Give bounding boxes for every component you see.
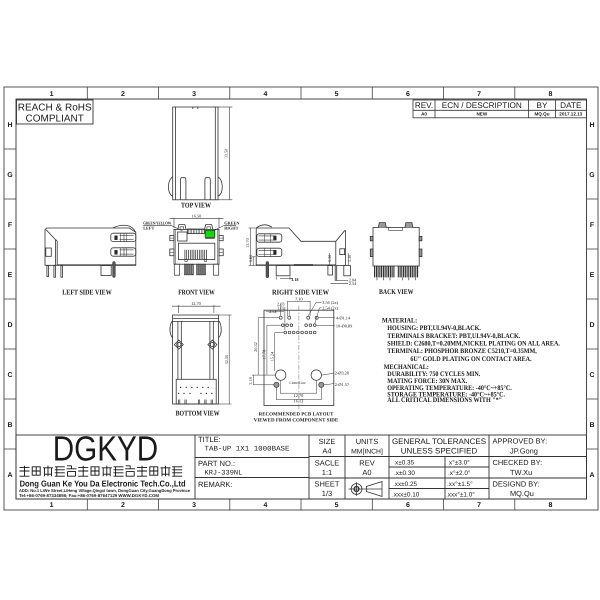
svg-text:2.54 (2x): 2.54 (2x)	[322, 305, 338, 310]
svg-text:1/3: 1/3	[322, 489, 332, 498]
svg-text:.xx°±1.5°: .xx°±1.5°	[447, 481, 473, 488]
svg-text:16.50: 16.50	[192, 214, 202, 219]
svg-text:HOUSING: PBT,UL94V-0,BLACK.: HOUSING: PBT,UL94V-0,BLACK.	[387, 325, 481, 332]
svg-text:LEFT: LEFT	[143, 226, 154, 231]
svg-text:E: E	[8, 272, 13, 279]
svg-text:3.30: 3.30	[347, 255, 352, 263]
svg-text:A: A	[589, 472, 594, 479]
svg-text:RIGHT: RIGHT	[224, 226, 238, 231]
svg-text:F: F	[590, 222, 595, 229]
svg-text:RIGHT SIDE VIEW: RIGHT SIDE VIEW	[272, 288, 330, 296]
svg-text:REMARK:: REMARK:	[198, 480, 233, 489]
svg-text:10-Ø0.89: 10-Ø0.89	[336, 323, 352, 328]
svg-text:DATE: DATE	[560, 101, 582, 110]
svg-text:16.13: 16.13	[294, 399, 304, 404]
svg-text:A: A	[7, 472, 12, 479]
svg-text:SHEET: SHEET	[314, 480, 339, 489]
svg-text:2017.12.13: 2017.12.13	[559, 112, 582, 117]
svg-text:G: G	[7, 172, 13, 179]
svg-text:6: 6	[406, 502, 410, 509]
svg-text:2-Ø3.20: 2-Ø3.20	[335, 371, 349, 376]
svg-text:A0: A0	[362, 468, 371, 477]
svg-text:A0: A0	[421, 112, 427, 117]
svg-text:A4: A4	[322, 447, 331, 456]
svg-text:x°±3.0°: x°±3.0°	[449, 460, 470, 467]
svg-text:BACK VIEW: BACK VIEW	[379, 288, 414, 296]
svg-text:D: D	[7, 322, 12, 329]
svg-text:2-Ø1.57: 2-Ø1.57	[335, 382, 350, 387]
svg-text:3: 3	[192, 502, 196, 509]
svg-text:E: E	[590, 272, 595, 279]
svg-text:.x±0.30: .x±0.30	[394, 470, 415, 477]
svg-text:DURABILITY: 750 CYCLES MIN.: DURABILITY: 750 CYCLES MIN.	[387, 371, 480, 378]
svg-text:.xxx°±1.0°: .xxx°±1.0°	[446, 491, 475, 498]
svg-text:TOP VIEW: TOP VIEW	[181, 201, 212, 209]
svg-text:H: H	[7, 122, 12, 129]
svg-text:5: 5	[335, 502, 339, 509]
svg-text:4: 4	[263, 502, 267, 509]
svg-text:4: 4	[263, 91, 267, 98]
svg-text:5: 5	[335, 91, 339, 98]
svg-text:H: H	[589, 122, 594, 129]
svg-text:1.02: 1.02	[277, 305, 285, 310]
svg-text:G: G	[589, 172, 595, 179]
svg-text:B: B	[589, 422, 594, 429]
svg-text:NEW: NEW	[476, 112, 487, 117]
svg-text:MATING FORCE: 30N MAX.: MATING FORCE: 30N MAX.	[387, 378, 467, 385]
svg-text:3: 3	[192, 91, 196, 98]
svg-text:SIZE: SIZE	[319, 437, 336, 446]
svg-text:3.18: 3.18	[291, 277, 299, 282]
svg-text:F: F	[8, 222, 13, 229]
svg-text:3.30: 3.30	[327, 255, 332, 263]
svg-text:TAB-UP 1X1 1000BASE: TAB-UP 1X1 1000BASE	[205, 446, 290, 454]
svg-text:3.56 (2x): 3.56 (2x)	[322, 300, 338, 305]
svg-text:x±0.35: x±0.35	[395, 460, 415, 467]
svg-text:CHECKED BY:: CHECKED BY:	[493, 458, 543, 467]
svg-text:KRJ-339NL: KRJ-339NL	[205, 470, 243, 478]
svg-text:15.24: 15.24	[270, 351, 275, 362]
svg-text:JP.Gong: JP.Gong	[510, 447, 538, 456]
svg-text:17.78: 17.78	[262, 350, 267, 360]
svg-text:SACLE: SACLE	[315, 459, 340, 468]
svg-text:32.50: 32.50	[224, 355, 229, 365]
svg-text:2: 2	[121, 502, 125, 509]
svg-text:12.70: 12.70	[294, 393, 304, 398]
svg-text:TW.Xu: TW.Xu	[510, 468, 532, 477]
svg-text:PART NO.:: PART NO.:	[198, 459, 235, 468]
svg-text:33.50: 33.50	[224, 149, 229, 159]
svg-text:2: 2	[121, 91, 125, 98]
svg-text:.xxx±0.10: .xxx±0.10	[392, 491, 420, 498]
svg-text:TERMINAL: PHOSPHOR BRONZE C521: TERMINAL: PHOSPHOR BRONZE C5210,T=0.35MM…	[387, 348, 537, 355]
svg-text:REV: REV	[359, 459, 374, 468]
svg-text:BOTTOM VIEW: BOTTOM VIEW	[176, 410, 221, 418]
svg-text:ALL CRITICAL DIMENSIONS WITH ": ALL CRITICAL DIMENSIONS WITH "*"	[387, 397, 502, 404]
svg-text:UNITS: UNITS	[356, 437, 379, 446]
svg-text:8: 8	[548, 91, 552, 98]
svg-text:B: B	[7, 422, 12, 429]
svg-text:REV.: REV.	[415, 101, 433, 110]
svg-text:3.18: 3.18	[248, 377, 253, 385]
svg-text:3.60: 3.60	[248, 255, 253, 263]
svg-text:.xx±0.25: .xx±0.25	[393, 481, 418, 488]
svg-text:.x°±2.0°: .x°±2.0°	[448, 470, 471, 477]
svg-text:CenterLine: CenterLine	[290, 381, 307, 385]
svg-text:TITLE:: TITLE:	[198, 435, 221, 444]
svg-text:1:1: 1:1	[322, 468, 332, 477]
svg-text:DGKYD: DGKYD	[53, 430, 159, 469]
svg-text:TERMINALS BRACKET: PBT,UL94V-0: TERMINALS BRACKET: PBT,UL94V-0,BLACK.	[387, 333, 520, 340]
svg-text:2.54: 2.54	[349, 281, 357, 286]
svg-text:Tel:+86-0769-87334898; Fax:+8: Tel:+86-0769-87334898; Fax:+86-0769-8764…	[19, 493, 160, 498]
svg-text:13.70: 13.70	[245, 238, 250, 248]
svg-text:6U" GOLD PLATING ON CONTACT AR: 6U" GOLD PLATING ON CONTACT AREA.	[410, 356, 532, 363]
svg-text:MATERIAL:: MATERIAL:	[382, 318, 417, 325]
svg-text:20.32: 20.32	[253, 342, 258, 352]
svg-text:D: D	[589, 322, 594, 329]
svg-text:UNLESS SPECIFIED: UNLESS SPECIFIED	[401, 447, 478, 456]
svg-text:APPROVED BY:: APPROVED BY:	[493, 437, 548, 446]
svg-text:DESIGND BY:: DESIGND BY:	[493, 480, 540, 489]
svg-text:FRONT VIEW: FRONT VIEW	[178, 288, 215, 296]
svg-text:VIEWED FROM COMPONENT SIDE: VIEWED FROM COMPONENT SIDE	[254, 417, 339, 423]
svg-text:MQ.Qu: MQ.Qu	[534, 112, 549, 117]
svg-text:2.54: 2.54	[269, 309, 277, 314]
svg-text:1: 1	[50, 91, 54, 98]
svg-text:4-Ø1.14: 4-Ø1.14	[336, 315, 351, 320]
svg-text:LEFT SIDE VIEW: LEFT SIDE VIEW	[62, 288, 112, 296]
svg-text:RECOMMENDED PCB LAYOUT: RECOMMENDED PCB LAYOUT	[259, 412, 334, 418]
svg-text:BY: BY	[537, 101, 548, 110]
svg-text:Dong Guan Ke You Da Electronic: Dong Guan Ke You Da Electronic Tech.Co.,…	[20, 478, 186, 488]
svg-text:SHIELD: C2680,T=0.20MM,NICKEL: SHIELD: C2680,T=0.20MM,NICKEL PLATING ON…	[387, 341, 560, 348]
svg-text:12.70: 12.70	[191, 301, 201, 306]
svg-text:6: 6	[406, 91, 410, 98]
svg-text:7.10: 7.10	[295, 296, 303, 301]
svg-text:7: 7	[477, 91, 481, 98]
svg-text:COMPLIANT: COMPLIANT	[26, 114, 84, 125]
svg-text:MQ.Qu: MQ.Qu	[510, 489, 534, 498]
svg-text:C: C	[7, 372, 12, 379]
svg-text:1: 1	[50, 502, 54, 509]
svg-text:REACH & RoHS: REACH & RoHS	[18, 103, 92, 114]
svg-text:C: C	[589, 372, 594, 379]
svg-text:ECN / DESCRIPTION: ECN / DESCRIPTION	[442, 101, 522, 110]
svg-text:7: 7	[477, 502, 481, 509]
svg-text:MM[INCH]: MM[INCH]	[351, 449, 383, 456]
svg-text:8: 8	[548, 502, 552, 509]
svg-text:GENERAL TOLERANCES: GENERAL TOLERANCES	[392, 437, 486, 446]
